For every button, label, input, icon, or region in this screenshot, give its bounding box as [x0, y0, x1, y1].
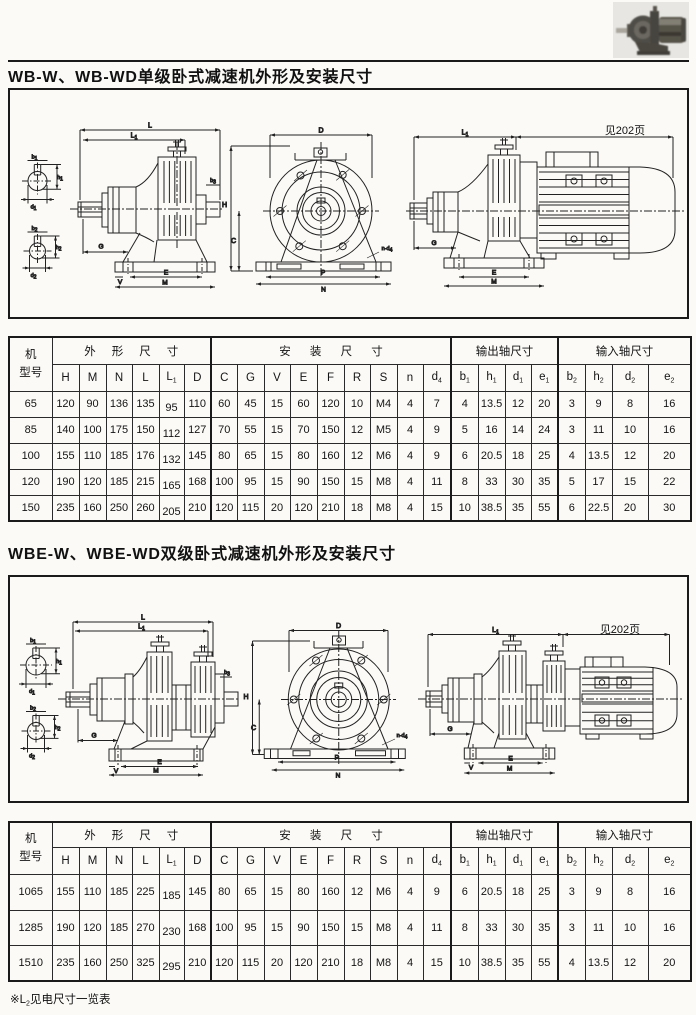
svg-text:C: C [231, 238, 236, 245]
svg-text:G: G [431, 240, 436, 247]
svg-text:V: V [114, 768, 119, 775]
svg-text:n-d4: n-d4 [397, 733, 408, 741]
svg-text:d2: d2 [29, 754, 35, 762]
svg-text:C: C [251, 725, 256, 732]
svg-text:见202页: 见202页 [605, 125, 645, 137]
svg-text:E: E [492, 270, 497, 277]
svg-text:M: M [491, 279, 496, 286]
svg-text:G: G [91, 733, 96, 740]
svg-text:b3: b3 [224, 670, 230, 678]
svg-text:V: V [118, 279, 123, 286]
svg-text:P: P [335, 755, 339, 762]
svg-text:h2: h2 [55, 725, 61, 733]
svg-text:M: M [162, 280, 167, 287]
svg-text:V: V [469, 765, 474, 772]
svg-text:M: M [507, 766, 512, 773]
svg-text:b3: b3 [210, 178, 216, 186]
svg-text:h1: h1 [56, 659, 62, 667]
svg-text:L: L [148, 123, 152, 130]
svg-text:E: E [508, 756, 513, 763]
svg-text:D: D [318, 128, 323, 135]
svg-text:见202页: 见202页 [600, 624, 640, 636]
svg-text:h1: h1 [57, 175, 63, 183]
svg-text:H: H [222, 202, 227, 209]
svg-text:M: M [153, 768, 158, 775]
svg-text:D: D [336, 623, 341, 630]
svg-text:E: E [157, 759, 162, 766]
svg-text:N: N [321, 287, 326, 294]
svg-text:E: E [164, 270, 169, 277]
svg-text:L: L [141, 615, 145, 622]
svg-text:d1: d1 [29, 689, 35, 697]
svg-text:P: P [321, 270, 325, 277]
svg-text:d2: d2 [31, 273, 37, 281]
svg-text:N: N [336, 773, 341, 780]
svg-text:d1: d1 [31, 205, 37, 213]
svg-text:H: H [243, 694, 248, 701]
svg-text:G: G [98, 244, 103, 251]
svg-text:n-d4: n-d4 [382, 246, 393, 254]
svg-text:h2: h2 [56, 245, 62, 253]
svg-text:G: G [447, 726, 452, 733]
